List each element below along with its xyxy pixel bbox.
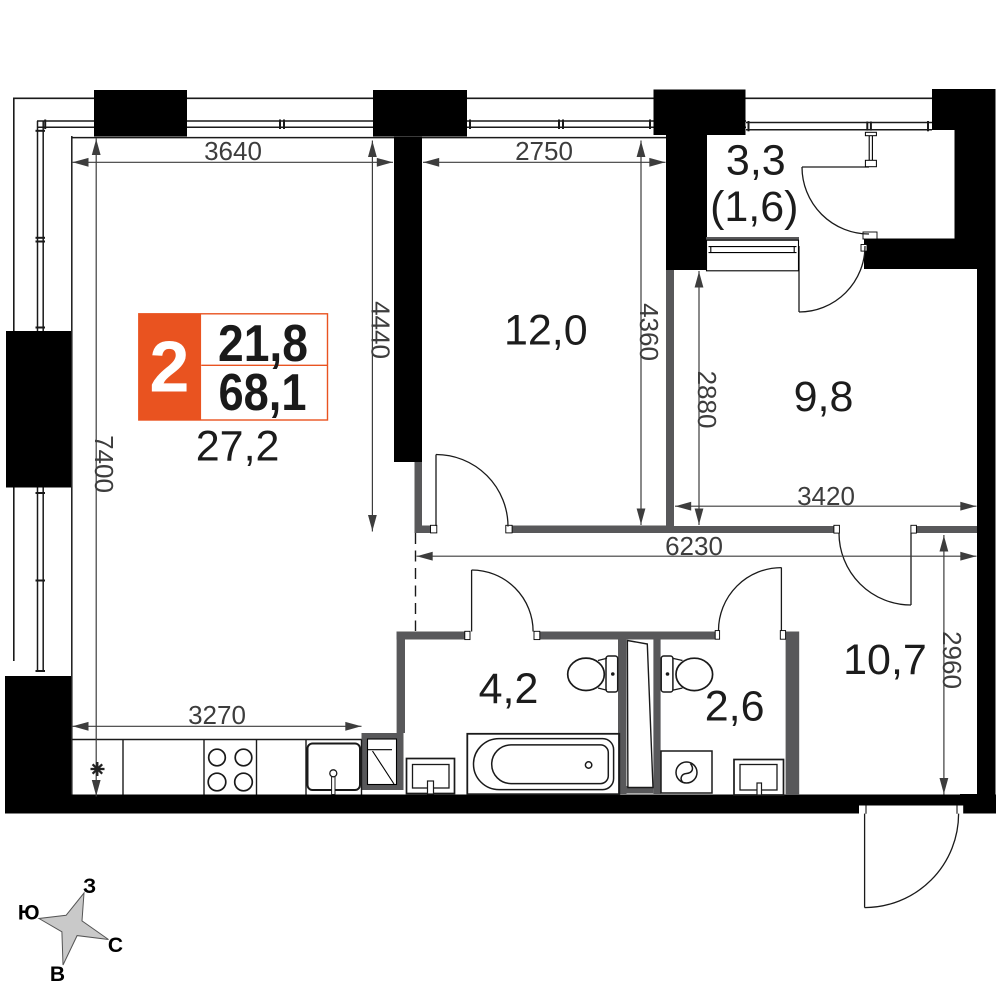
svg-text:В: В	[50, 963, 65, 986]
svg-text:3,3: 3,3	[726, 137, 786, 185]
svg-text:2: 2	[149, 327, 189, 407]
svg-text:7400: 7400	[89, 435, 119, 493]
svg-text:З: З	[83, 875, 96, 898]
svg-text:4440: 4440	[365, 301, 395, 359]
svg-text:6230: 6230	[665, 531, 723, 561]
svg-text:2960: 2960	[937, 631, 967, 689]
svg-text:10,7: 10,7	[843, 636, 927, 684]
svg-text:9,8: 9,8	[794, 373, 854, 421]
svg-text:2880: 2880	[692, 371, 722, 429]
svg-text:С: С	[108, 934, 123, 957]
svg-text:2750: 2750	[515, 136, 573, 166]
svg-text:68,1: 68,1	[219, 364, 307, 422]
svg-text:4,2: 4,2	[479, 665, 539, 713]
svg-text:12,0: 12,0	[504, 307, 588, 355]
svg-text:3270: 3270	[188, 700, 246, 730]
svg-text:4360: 4360	[634, 303, 664, 361]
svg-text:(1,6): (1,6)	[710, 183, 798, 231]
svg-text:3640: 3640	[204, 136, 262, 166]
svg-text:2,6: 2,6	[705, 683, 765, 731]
svg-text:3420: 3420	[797, 481, 855, 511]
svg-text:Ю: Ю	[18, 902, 40, 925]
svg-text:27,2: 27,2	[196, 423, 280, 471]
